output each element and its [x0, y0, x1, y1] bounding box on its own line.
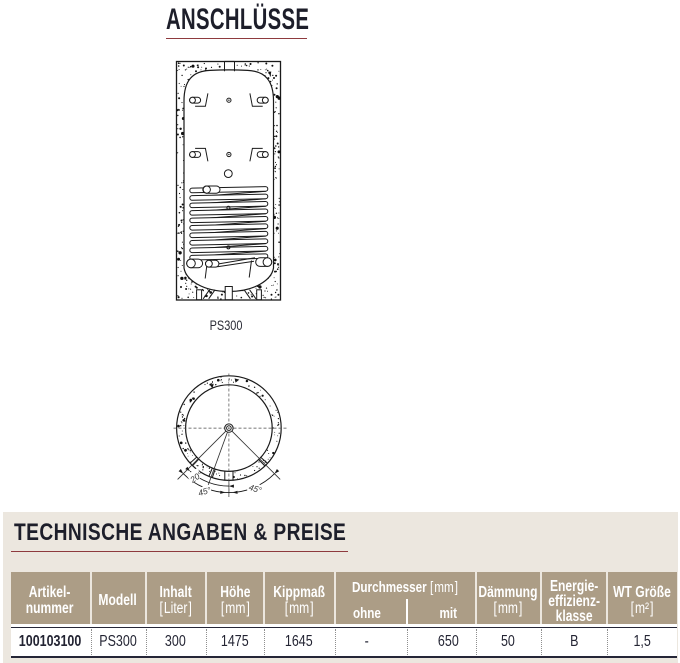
svg-text:45°: 45°	[197, 485, 213, 498]
svg-text:20°: 20°	[187, 469, 205, 485]
